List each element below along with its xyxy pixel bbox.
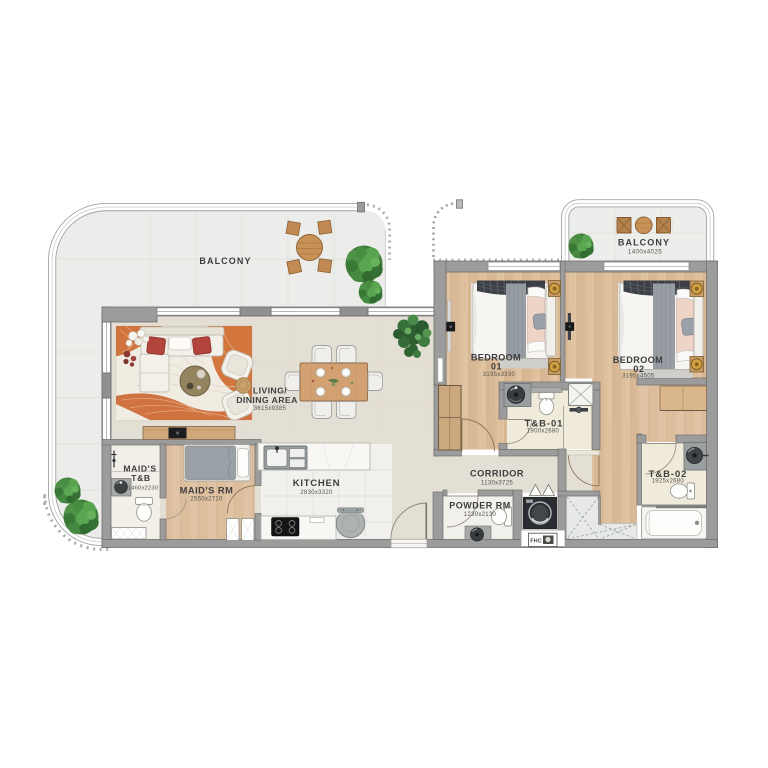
svg-text:1460x2230: 1460x2230 [128,486,159,492]
svg-text:BALCONY: BALCONY [618,238,670,248]
svg-text:BALCONY: BALCONY [199,256,251,266]
svg-text:01: 01 [491,362,502,372]
svg-text:POWDER RM: POWDER RM [449,501,511,511]
svg-text:3195x4505: 3195x4505 [622,373,655,379]
svg-text:2550x2710: 2550x2710 [190,496,223,502]
svg-text:T&B: T&B [131,473,150,483]
svg-text:1900x2680: 1900x2680 [527,429,560,435]
svg-text:CORRIDOR: CORRIDOR [470,469,524,479]
svg-text:3195x3330: 3195x3330 [483,372,516,378]
svg-text:MAID'S: MAID'S [123,464,156,474]
svg-text:MAID'S RM: MAID'S RM [180,485,234,495]
svg-text:DINING AREA: DINING AREA [236,395,298,405]
svg-text:1230x2130: 1230x2130 [464,512,497,518]
svg-text:KITCHEN: KITCHEN [293,478,341,489]
svg-text:FHC: FHC [530,539,542,545]
svg-text:1130x3725: 1130x3725 [481,480,513,486]
svg-text:1925x2680: 1925x2680 [652,479,685,485]
svg-text:2830x3320: 2830x3320 [300,490,333,496]
svg-text:1400x4025: 1400x4025 [628,249,662,256]
svg-text:3615x9385: 3615x9385 [254,406,287,412]
